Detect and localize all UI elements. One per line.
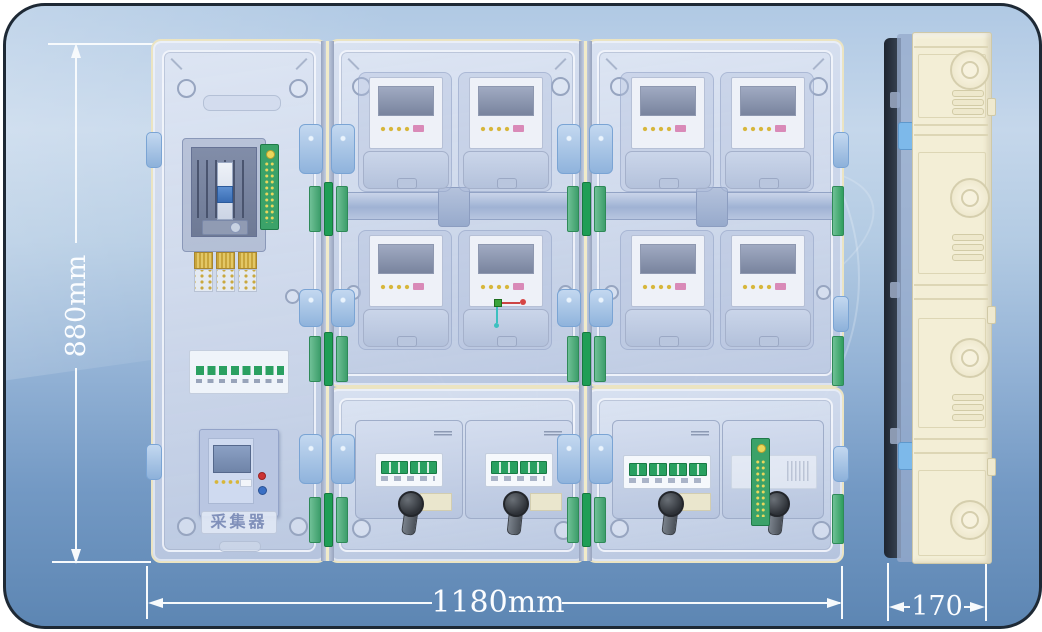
door-hinge-green [324,182,333,236]
side-divider-line [914,124,988,126]
door-latch-blue [299,434,355,484]
extension-line-right [985,563,987,621]
green-terminal-block [381,461,408,474]
meter-indicator-lights [741,283,797,291]
meter-face [731,235,805,307]
edge-latch-blue [146,444,162,480]
screw-hole [816,285,831,300]
vent-slot [952,99,984,106]
module-vent-marks [691,431,709,437]
wire-terminal-pins [238,269,257,292]
wire-terminal-pins [216,269,235,292]
height-dimension-label: 880mm [61,241,91,371]
depth-dimension-label: 170 [907,591,967,622]
side-mount-tab [987,458,996,476]
meter-face [731,77,805,149]
meter-indicator-lights [379,283,435,291]
screw-hole [177,79,196,98]
screw-hole [177,517,196,536]
door-hinge-green [324,493,333,547]
pcb-pins [755,459,766,517]
cable-knockout [950,50,990,90]
green-terminal-block [520,461,547,474]
meter-face [369,235,443,307]
bus-bar-junction [696,187,728,227]
arrowhead-down [71,549,81,564]
terminal-pcb-strip [260,144,279,230]
meter-lcd-display [740,244,796,274]
meter-lcd-display [740,86,796,116]
terminal-hooks [629,478,705,483]
green-terminal-block [410,461,437,474]
energy-meter [358,230,452,350]
gizmo-y-handle [494,323,499,328]
arrowhead-left [889,602,904,612]
meter-terminal-cover [363,151,449,189]
extension-line-top [48,43,160,45]
dimension-line-upper [75,50,77,243]
meter-indicator-lights [641,283,697,291]
side-divider-line [914,284,988,286]
vent-slot [952,108,984,115]
energy-meter [720,72,814,192]
vent-slot [952,234,984,241]
breaker-bottom-plate [202,220,248,235]
screw-hole [551,77,570,96]
energy-meter [458,230,552,350]
breaker-knob [398,491,424,517]
green-terminal-block [491,461,518,474]
width-dimension-label: 1180mm [424,585,572,620]
vent-slot [952,90,984,97]
extension-line-right [841,566,843,619]
module-vent-marks [434,431,452,437]
side-box-top-line [914,46,988,48]
energy-meter [358,72,452,192]
terminal-pcb-strip [751,438,770,526]
vent-slot [952,254,984,261]
module-terminal-strip [485,453,553,487]
gizmo-x-handle [520,299,526,305]
extension-line-left [887,563,889,621]
screw-hole [352,519,371,538]
breaker-toggle [217,186,233,203]
side-mount-tab [987,98,996,116]
collector-indicator-lights [213,479,239,485]
collector-label-window [240,479,252,487]
terminal-row-green-blocks [196,366,284,375]
meter-face [469,235,543,307]
collector-blue-button [258,486,267,495]
meter-indicator-lights [641,125,697,133]
edge-hinge-green [832,494,844,544]
extension-line-bottom [52,561,151,563]
edge-latch-blue [833,132,849,168]
dimension-line-left [152,602,432,604]
module-terminal-strip [375,453,443,487]
module-nameplate [420,493,452,511]
edge-hinge-green [832,336,844,386]
side-mount-tab [987,306,996,324]
energy-meter [620,230,714,350]
door-hinge-green [582,182,591,236]
bus-bar-junction [438,187,470,227]
meter-face [469,77,543,149]
dimension-line-right [562,602,840,604]
vent-slot [952,414,984,421]
meter-terminal-cover [625,151,711,189]
gizmo-y-axis [496,307,498,323]
pcb-pins [264,161,275,223]
collector-nameplate: 采集器 [201,511,277,534]
meter-face [631,77,705,149]
meter-indicator-lights [741,125,797,133]
terminal-row-strip [189,350,289,394]
extension-line-left [146,566,148,619]
collector-red-button [258,472,266,480]
edge-latch-blue [146,132,162,168]
edge-latch-blue [833,446,849,482]
energy-meter [620,72,714,192]
door-hinge-green [324,332,333,386]
screw-hole [289,79,308,98]
wire-terminal-pins [194,269,213,292]
collector-panel [208,438,254,504]
door-latch-blue [299,289,355,327]
arrowhead-right [970,602,985,612]
meter-lcd-display [378,86,434,116]
cable-knockout [950,338,990,378]
side-divider-line [914,134,988,136]
door-latch-blue [557,289,613,327]
wire-terminal-gold [238,252,257,269]
gizmo-origin [494,299,502,307]
vent-slot [952,404,984,411]
vent-slot [952,394,984,401]
breaker-knob [503,491,529,517]
wire-terminal-gold [216,252,235,269]
main-breaker-housing [182,138,266,252]
door-hinge-green [582,332,591,386]
door-handle-recess [203,95,281,111]
green-terminal-block [629,463,647,476]
meter-indicator-lights [479,283,535,291]
meter-face [369,77,443,149]
door-hinge-green [582,493,591,547]
screw-hole [289,517,308,536]
screw-hole [285,289,300,304]
side-divider-line [914,452,988,454]
energy-meter [720,230,814,350]
energy-meter [458,72,552,192]
breaker-knob [658,491,684,517]
meter-lcd-display [478,86,534,116]
cable-knockout [950,178,990,218]
meter-lcd-display [640,244,696,274]
terminal-grid-marks [787,461,811,481]
collector-label: 采集器 [202,512,276,532]
meter-lcd-display [478,244,534,274]
side-divider-line [914,298,988,300]
door-latch-blue [557,124,613,174]
door-latch-blue [299,124,355,174]
meter-terminal-cover [463,151,549,189]
vent-slot [952,244,984,251]
meter-terminal-cover [625,309,711,347]
meter-box-product-diagram: 880mm 1180mm 170 [0,0,1042,632]
arrowhead-up [71,43,81,58]
meter-lcd-display [640,86,696,116]
meter-lcd-display [378,244,434,274]
arrowhead-left [148,598,163,608]
terminal-hooks [491,476,545,481]
main-breaker-panel [191,147,257,237]
meter-indicator-lights [479,125,535,133]
green-terminal-block [649,463,667,476]
terminal-row-ticks [196,379,284,383]
screw-hole [610,519,629,538]
door-bottom-recess [219,541,261,552]
dimension-line-lower [75,368,77,559]
breaker-dial [230,222,241,233]
edge-hinge-green [832,186,844,236]
arrowhead-right [827,598,842,608]
green-terminal-block [689,463,707,476]
meter-terminal-cover [463,309,549,347]
module-terminal-strip [623,455,711,489]
green-terminal-block [669,463,687,476]
meter-terminal-cover [363,309,449,347]
side-divider-line [914,438,988,440]
cable-knockout [950,500,990,540]
meter-terminal-cover [725,309,811,347]
meter-face [631,235,705,307]
module-nameplate [530,493,562,511]
wire-terminal-gold [194,252,213,269]
door-latch-blue [557,434,613,484]
terminal-hooks [381,476,435,481]
collector-unit [199,429,279,517]
gizmo-x-axis [502,302,520,304]
meter-indicator-lights [379,125,435,133]
edge-latch-blue [833,296,849,332]
collector-lcd-display [213,445,251,473]
diagram-background: 880mm 1180mm 170 [3,3,1042,629]
meter-terminal-cover [725,151,811,189]
screw-hole [812,521,831,540]
